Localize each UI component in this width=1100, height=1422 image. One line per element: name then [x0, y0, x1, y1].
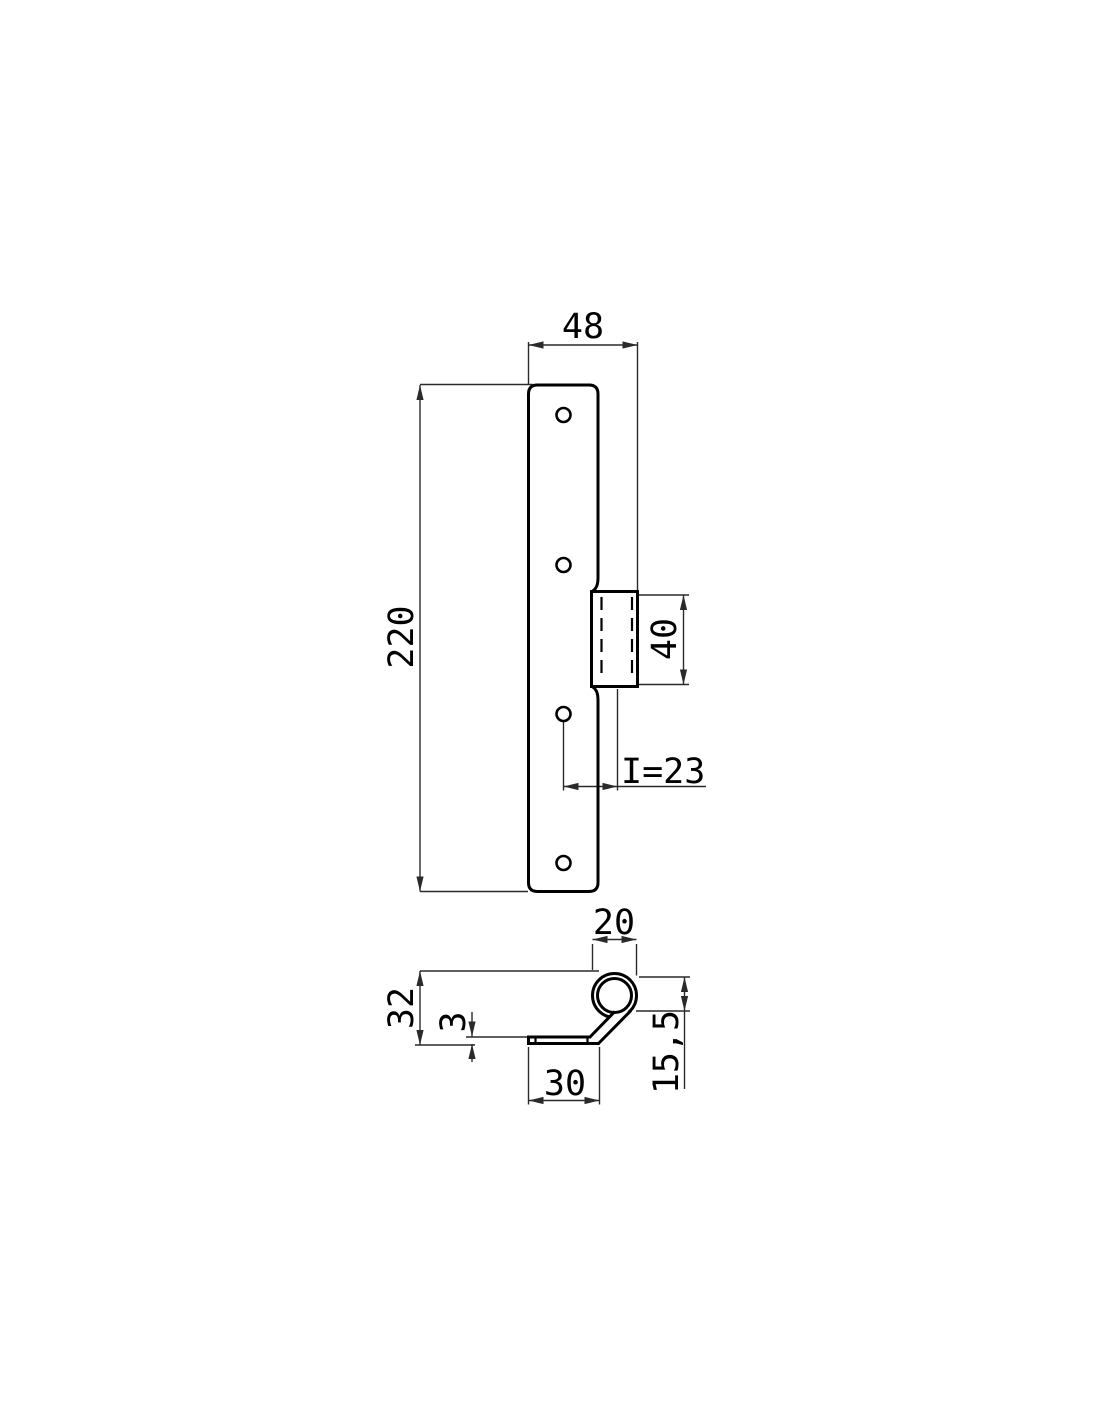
- knuckle-outline: [592, 592, 638, 687]
- dim-section-height: 32: [382, 971, 599, 1045]
- dim-curl-inner-label: 15,5: [647, 1010, 687, 1094]
- dim-hole-offset-label: I=23: [621, 752, 705, 792]
- dim-overall-height-label: 220: [382, 605, 422, 668]
- dim-section-height-label: 32: [382, 987, 422, 1029]
- hinge-technical-drawing: 48 220 40 I=23: [0, 0, 1100, 1422]
- dim-knuckle-height-label: 40: [645, 618, 685, 660]
- dim-hole-offset: I=23: [564, 689, 707, 792]
- screw-hole-4: [557, 856, 571, 870]
- drawing-canvas: 48 220 40 I=23: [0, 0, 1100, 1422]
- dim-overall-height: 220: [382, 385, 533, 892]
- dim-overall-width: 48: [529, 307, 638, 591]
- dim-curl-inner: 15,5: [636, 977, 690, 1094]
- screw-hole-2: [557, 558, 571, 572]
- dim-curl-width: 20: [593, 903, 637, 976]
- dim-thickness-label: 3: [434, 1011, 474, 1032]
- dim-overall-width-label: 48: [562, 307, 604, 347]
- leaf-plate-outline: [529, 385, 599, 892]
- curl-eye: [590, 974, 637, 1044]
- dim-thickness: 3: [434, 1011, 528, 1062]
- dim-leaf-width: 30: [529, 1047, 600, 1105]
- screw-hole-1: [557, 408, 571, 422]
- dim-knuckle-height: 40: [639, 595, 689, 685]
- screw-hole-3: [557, 707, 571, 721]
- front-view: 48 220 40 I=23: [382, 307, 706, 892]
- section-profile-view: 20 32 3 30 15,5: [382, 903, 690, 1105]
- dim-leaf-width-label: 30: [544, 1064, 586, 1104]
- dim-curl-width-label: 20: [593, 903, 635, 943]
